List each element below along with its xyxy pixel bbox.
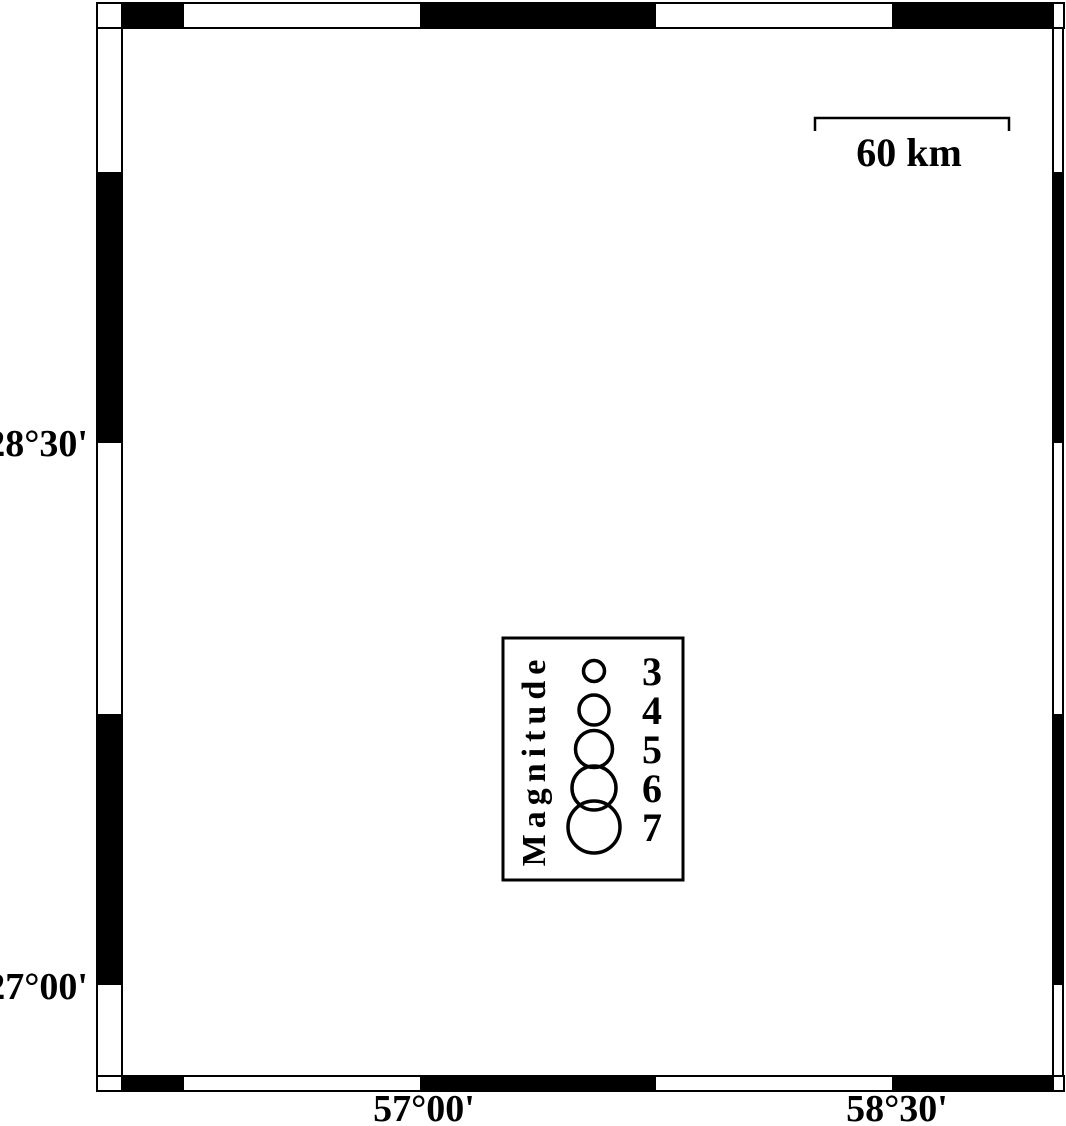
lat-label-28-30: 28°30' xyxy=(0,423,88,465)
lon-label-58-30: 58°30' xyxy=(846,1088,948,1126)
seismicity-map-figure: 60 km Magnitude 34567 28°30' 27°00' 57°0… xyxy=(0,0,1066,1126)
lon-label-57-00: 57°00' xyxy=(373,1088,475,1126)
legend-title: Magnitude xyxy=(516,654,553,867)
legend-label-mag-7: 7 xyxy=(642,805,662,850)
lat-label-27-00: 27°00' xyxy=(0,966,88,1008)
scale-bar-label: 60 km xyxy=(856,130,962,175)
legend-box: Magnitude 34567 xyxy=(503,638,683,880)
legend-magnitude-labels: 34567 xyxy=(642,649,662,850)
